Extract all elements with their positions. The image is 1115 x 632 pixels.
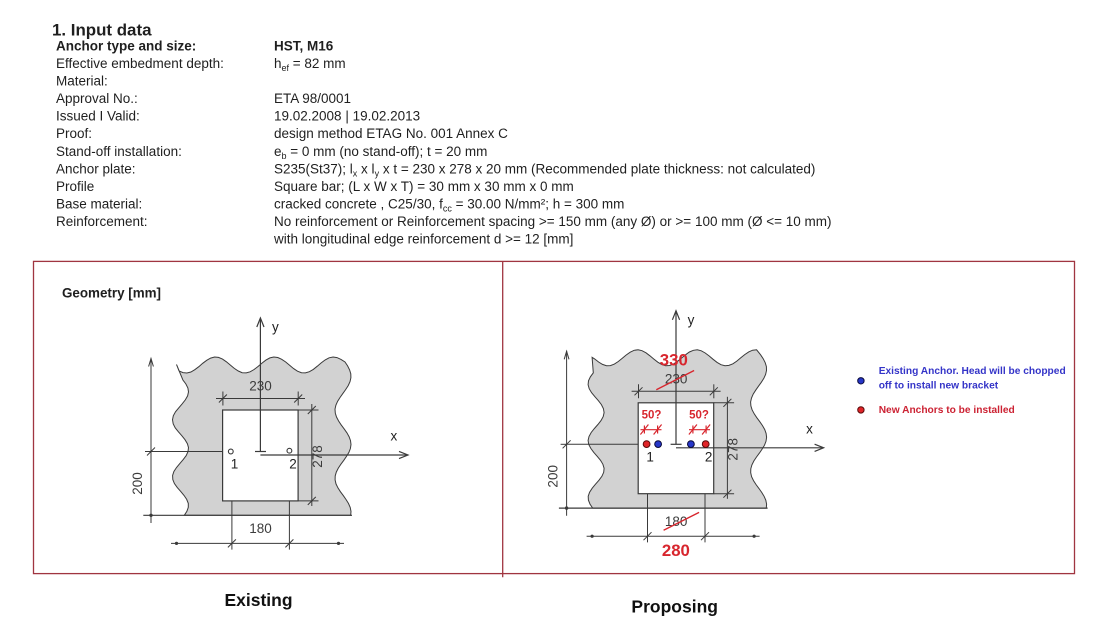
svg-text:y: y — [688, 312, 695, 327]
svg-text:2: 2 — [289, 457, 297, 472]
svg-text:Base material:: Base material: — [56, 197, 142, 212]
svg-text:278: 278 — [310, 445, 325, 468]
svg-text:Geometry [mm]: Geometry [mm] — [62, 286, 161, 301]
svg-text:19.02.2008 | 19.02.2013: 19.02.2008 | 19.02.2013 — [274, 109, 420, 124]
svg-text:New Anchors to be installed: New Anchors to be installed — [879, 405, 1015, 416]
svg-text:Proposing: Proposing — [631, 597, 718, 617]
svg-text:eb​ = 0 mm (no stand-off); t =: eb​ = 0 mm (no stand-off); t = 20 mm — [274, 144, 487, 161]
svg-text:50?: 50? — [642, 410, 662, 422]
svg-text:200: 200 — [130, 472, 145, 495]
svg-text:x: x — [391, 429, 398, 444]
svg-text:HST, M16: HST, M16 — [274, 38, 334, 53]
svg-text:Issued I Valid:: Issued I Valid: — [56, 109, 140, 124]
svg-text:off to install new bracket: off to install new bracket — [879, 380, 999, 391]
svg-text:180: 180 — [665, 514, 688, 529]
svg-text:No reinforcement or Reinforcem: No reinforcement or Reinforcement spacin… — [274, 214, 831, 229]
svg-text:Effective embedment depth:: Effective embedment depth: — [56, 56, 224, 71]
svg-text:Proof:: Proof: — [56, 126, 92, 141]
svg-text:Stand-off installation:: Stand-off installation: — [56, 144, 182, 159]
svg-text:Square bar; (L x W x T) = 30 m: Square bar; (L x W x T) = 30 mm x 30 mm … — [274, 179, 574, 194]
svg-text:y: y — [272, 320, 279, 335]
svg-text:200: 200 — [546, 465, 561, 488]
svg-text:Anchor type and size:: Anchor type and size: — [56, 38, 196, 53]
svg-text:50?: 50? — [689, 410, 709, 422]
svg-text:2: 2 — [705, 449, 713, 464]
svg-text:278: 278 — [726, 438, 741, 461]
svg-text:x: x — [806, 421, 813, 436]
svg-text:1: 1 — [646, 449, 654, 464]
svg-text:with longitudinal edge reinfor: with longitudinal edge reinforcement d >… — [273, 232, 573, 247]
svg-text:ETA 98/0001: ETA 98/0001 — [274, 91, 351, 106]
svg-text:Profile: Profile — [56, 179, 94, 194]
svg-text:Anchor plate:: Anchor plate: — [56, 161, 136, 176]
svg-text:1: 1 — [231, 457, 239, 472]
svg-text:design method ETAG No. 001 Ann: design method ETAG No. 001 Annex C — [274, 126, 508, 141]
svg-text:Existing Anchor. Head will be: Existing Anchor. Head will be chopped — [879, 366, 1066, 377]
svg-text:Existing: Existing — [224, 590, 292, 610]
svg-text:Material:: Material: — [56, 74, 108, 89]
svg-text:330: 330 — [660, 351, 688, 370]
svg-text:280: 280 — [662, 541, 690, 560]
svg-text:Approval No.:: Approval No.: — [56, 91, 138, 106]
svg-text:180: 180 — [249, 521, 272, 536]
svg-text:Reinforcement:: Reinforcement: — [56, 214, 148, 229]
svg-text:1. Input data: 1. Input data — [52, 21, 152, 40]
